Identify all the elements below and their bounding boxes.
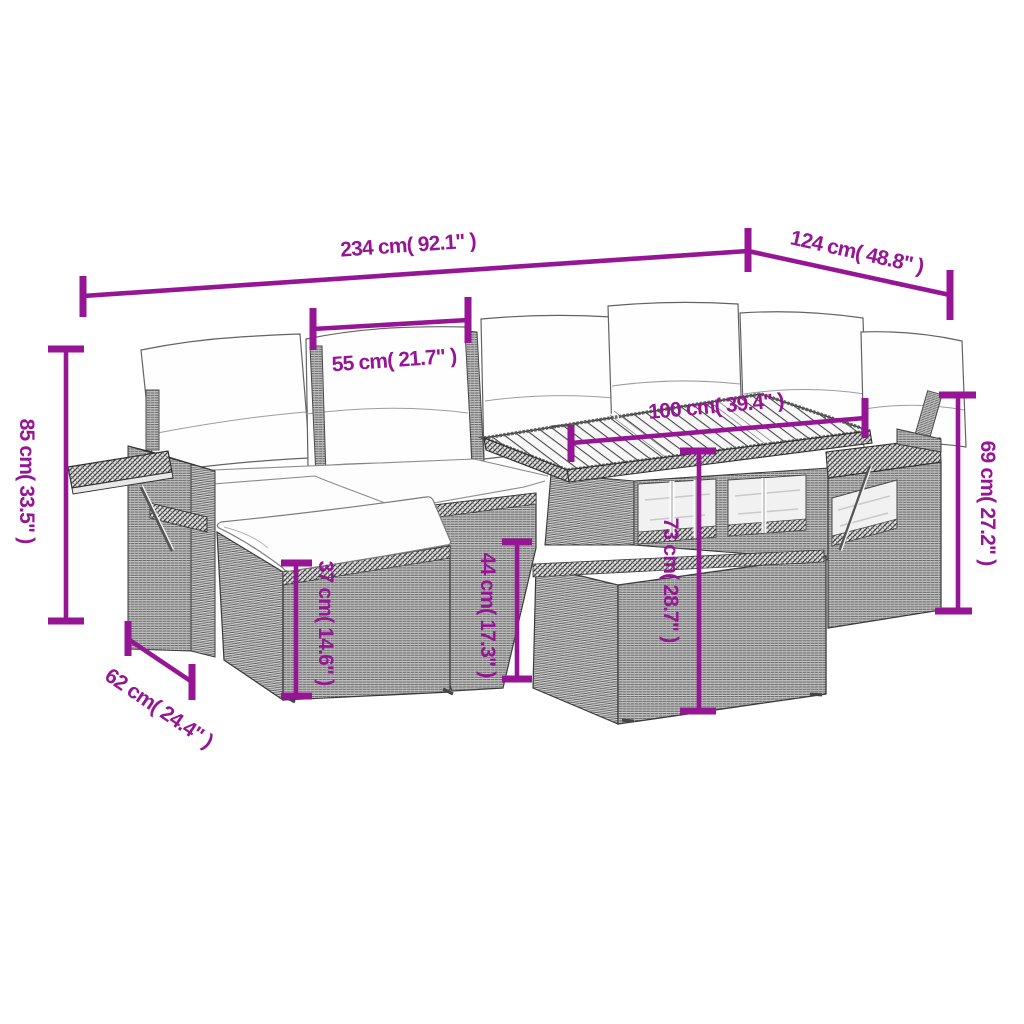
svg-text:44 cm( 17.3" ): 44 cm( 17.3" ): [476, 553, 499, 678]
svg-text:73 cm( 28.7" ): 73 cm( 28.7" ): [659, 518, 682, 643]
svg-text:85 cm( 33.5" ): 85 cm( 33.5" ): [15, 419, 38, 544]
svg-text:69 cm( 27.2" ): 69 cm( 27.2" ): [976, 441, 999, 566]
svg-text:37 cm( 14.6" ): 37 cm( 14.6" ): [314, 561, 337, 686]
